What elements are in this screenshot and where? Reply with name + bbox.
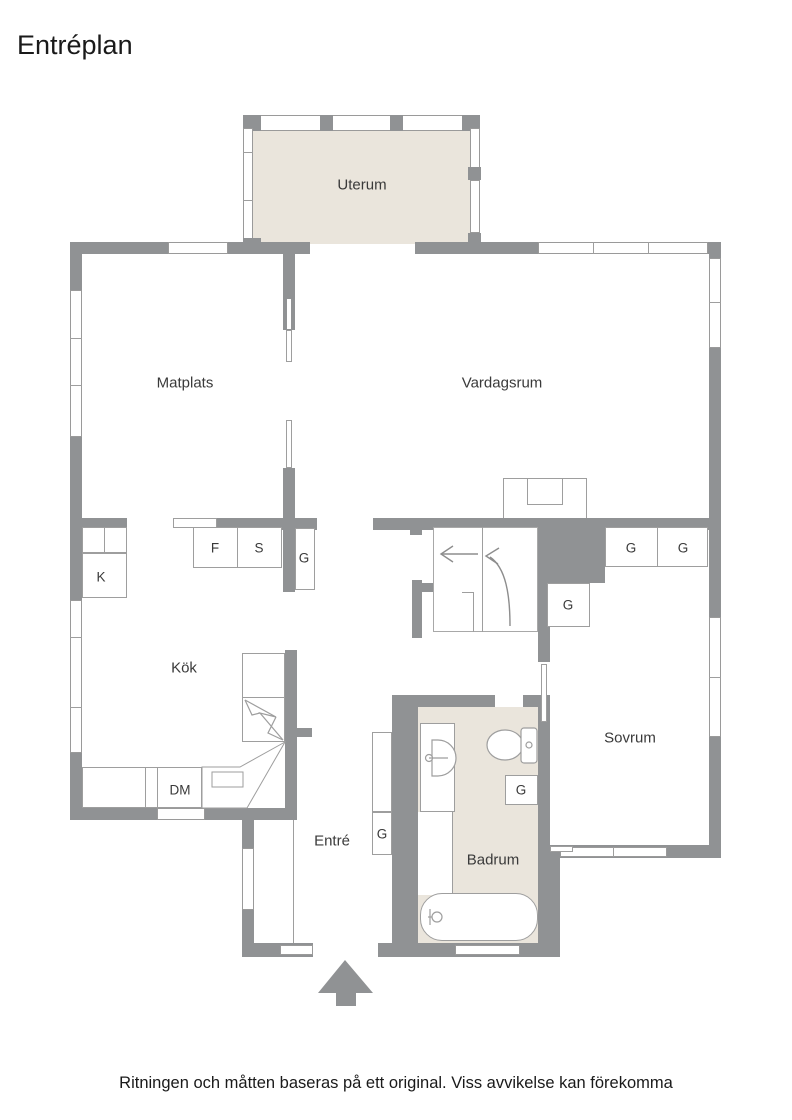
counter-divider <box>157 767 158 808</box>
room-label-sovrum: Sovrum <box>604 730 656 747</box>
entre-floor-line <box>293 820 294 943</box>
uterum-left-window <box>243 128 253 240</box>
wall-badrum-east <box>538 707 550 845</box>
room-label-badrum: Badrum <box>467 852 520 869</box>
room-label-entre: Entré <box>314 833 350 850</box>
window-mullion <box>593 242 594 254</box>
wall-stub-entre <box>297 728 312 737</box>
disclaimer-text: Ritningen och måtten baseras på ett orig… <box>0 1074 792 1093</box>
window-entre-left <box>242 848 254 910</box>
stair-understair-line <box>473 592 474 632</box>
window-mullion <box>243 200 253 201</box>
window-vardagsrum-right <box>709 258 721 348</box>
entre-wardrobe <box>372 732 392 812</box>
bathroom-vanity <box>420 723 455 812</box>
wall-badrum-top-left <box>392 695 495 707</box>
uterum-post <box>320 115 333 131</box>
stair-divider <box>482 527 483 632</box>
window-mullion <box>709 302 721 303</box>
window-matplats-top <box>168 242 228 254</box>
label-closet-g1: G <box>626 541 637 556</box>
room-label-vardagsrum: Vardagsrum <box>462 375 543 392</box>
wall-notch <box>410 530 422 535</box>
sliding-door-leaf <box>286 330 292 362</box>
stair-understair-line <box>462 592 473 593</box>
label-closet-pantry: G <box>299 551 310 566</box>
uterum-top-window <box>243 115 480 131</box>
window-mullion <box>70 637 82 638</box>
uterum-post <box>390 115 403 131</box>
label-fridge: K <box>96 570 105 585</box>
sovrum-door-leaf <box>541 664 547 722</box>
window-vardagsrum-top <box>538 242 708 254</box>
uterum-right-window <box>470 128 480 168</box>
kitchen-sink <box>212 772 243 787</box>
counter-divider <box>242 697 285 698</box>
uterum-right-window <box>470 180 480 233</box>
window-mullion <box>709 677 721 678</box>
counter-divider <box>145 767 146 808</box>
window-mullion <box>648 242 649 254</box>
uterum-post <box>468 167 481 180</box>
page-title: Entréplan <box>17 30 133 61</box>
window-kok-left <box>70 600 82 753</box>
label-pantry: S <box>254 541 263 556</box>
window-kok-bottom <box>157 808 205 820</box>
wall-kok-divider <box>283 530 295 592</box>
label-freezer: F <box>211 541 219 556</box>
label-closet-badrum: G <box>516 783 527 798</box>
wall-badrum-west <box>392 695 418 943</box>
door-leaf-small <box>550 846 573 852</box>
chimney-block <box>538 527 605 583</box>
kitchen-counter-angled <box>202 742 285 808</box>
wall-sovrum-corner-block <box>538 845 560 957</box>
bathtub <box>420 893 538 941</box>
label-dishwasher: DM <box>170 783 191 798</box>
room-label-kok: Kök <box>171 660 197 677</box>
staircase <box>433 527 538 632</box>
window-badrum-bottom <box>455 945 520 955</box>
cabinet-divider <box>104 527 105 553</box>
window-mullion <box>70 385 82 386</box>
window-bottom-sidelight <box>280 945 313 955</box>
sliding-door-pocket <box>286 298 292 330</box>
floor-plan-page: Entréplan <box>0 0 792 1120</box>
room-label-matplats: Matplats <box>157 375 214 392</box>
badrum-shower-area <box>418 812 453 895</box>
front-door-opening <box>313 943 378 957</box>
window-mullion <box>613 847 614 857</box>
wall-kok-east <box>285 650 297 820</box>
sliding-door-leaf <box>286 420 292 468</box>
label-closet-g3: G <box>563 598 574 613</box>
label-closet-entre: G <box>377 827 388 842</box>
window-mullion <box>243 152 253 153</box>
fireplace-inner <box>527 478 563 505</box>
entrance-arrow-icon <box>318 960 373 1006</box>
room-label-uterum: Uterum <box>337 177 386 194</box>
window-matplats-left <box>70 290 82 437</box>
window-mullion <box>70 338 82 339</box>
label-closet-g2: G <box>678 541 689 556</box>
window-mullion <box>70 707 82 708</box>
